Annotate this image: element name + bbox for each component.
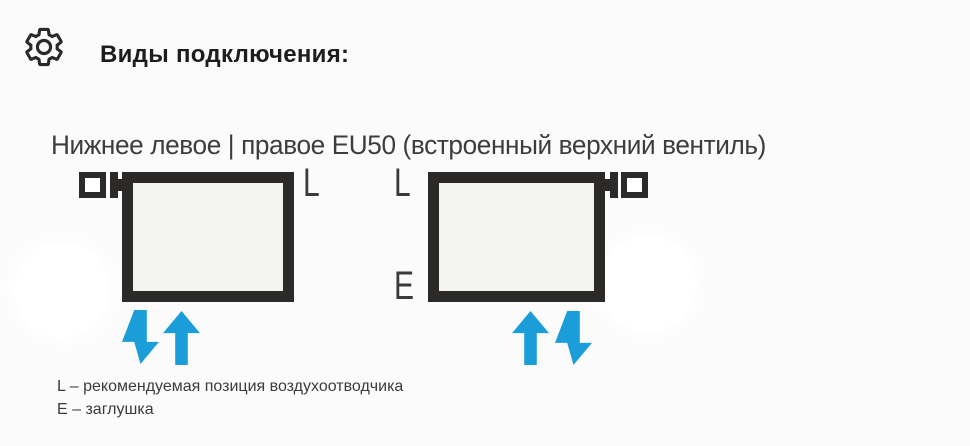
background-blob-right xyxy=(601,237,695,331)
valve-body-icon xyxy=(621,172,648,198)
legend-line-e: E – заглушка xyxy=(57,398,403,421)
background-blob-left xyxy=(15,243,109,337)
label-l-right-radiator: L xyxy=(394,163,411,203)
page-title: Виды подключения: xyxy=(100,41,349,69)
valve-bar-icon xyxy=(610,172,618,198)
label-l-left-radiator: L xyxy=(303,163,320,203)
label-e-right-radiator: E xyxy=(394,266,414,306)
valve-body-icon xyxy=(79,172,106,198)
connection-types-diagram: Виды подключения: Нижнее левое | правое … xyxy=(0,0,970,446)
radiator-left xyxy=(122,172,294,302)
valve-bar-icon xyxy=(110,172,118,198)
legend: L – рекомендуемая позиция воздухоотводчи… xyxy=(57,375,403,421)
arrow-down-icon xyxy=(122,310,159,364)
gear-icon xyxy=(22,25,66,69)
valve-stub-icon xyxy=(118,179,124,191)
arrow-up-icon xyxy=(163,311,200,365)
radiator-right xyxy=(428,172,605,302)
connection-subtitle: Нижнее левое | правое EU50 (встроенный в… xyxy=(51,130,766,161)
arrow-up-icon xyxy=(512,311,549,365)
arrow-down-icon xyxy=(555,311,592,365)
legend-line-l: L – рекомендуемая позиция воздухоотводчи… xyxy=(57,375,403,398)
